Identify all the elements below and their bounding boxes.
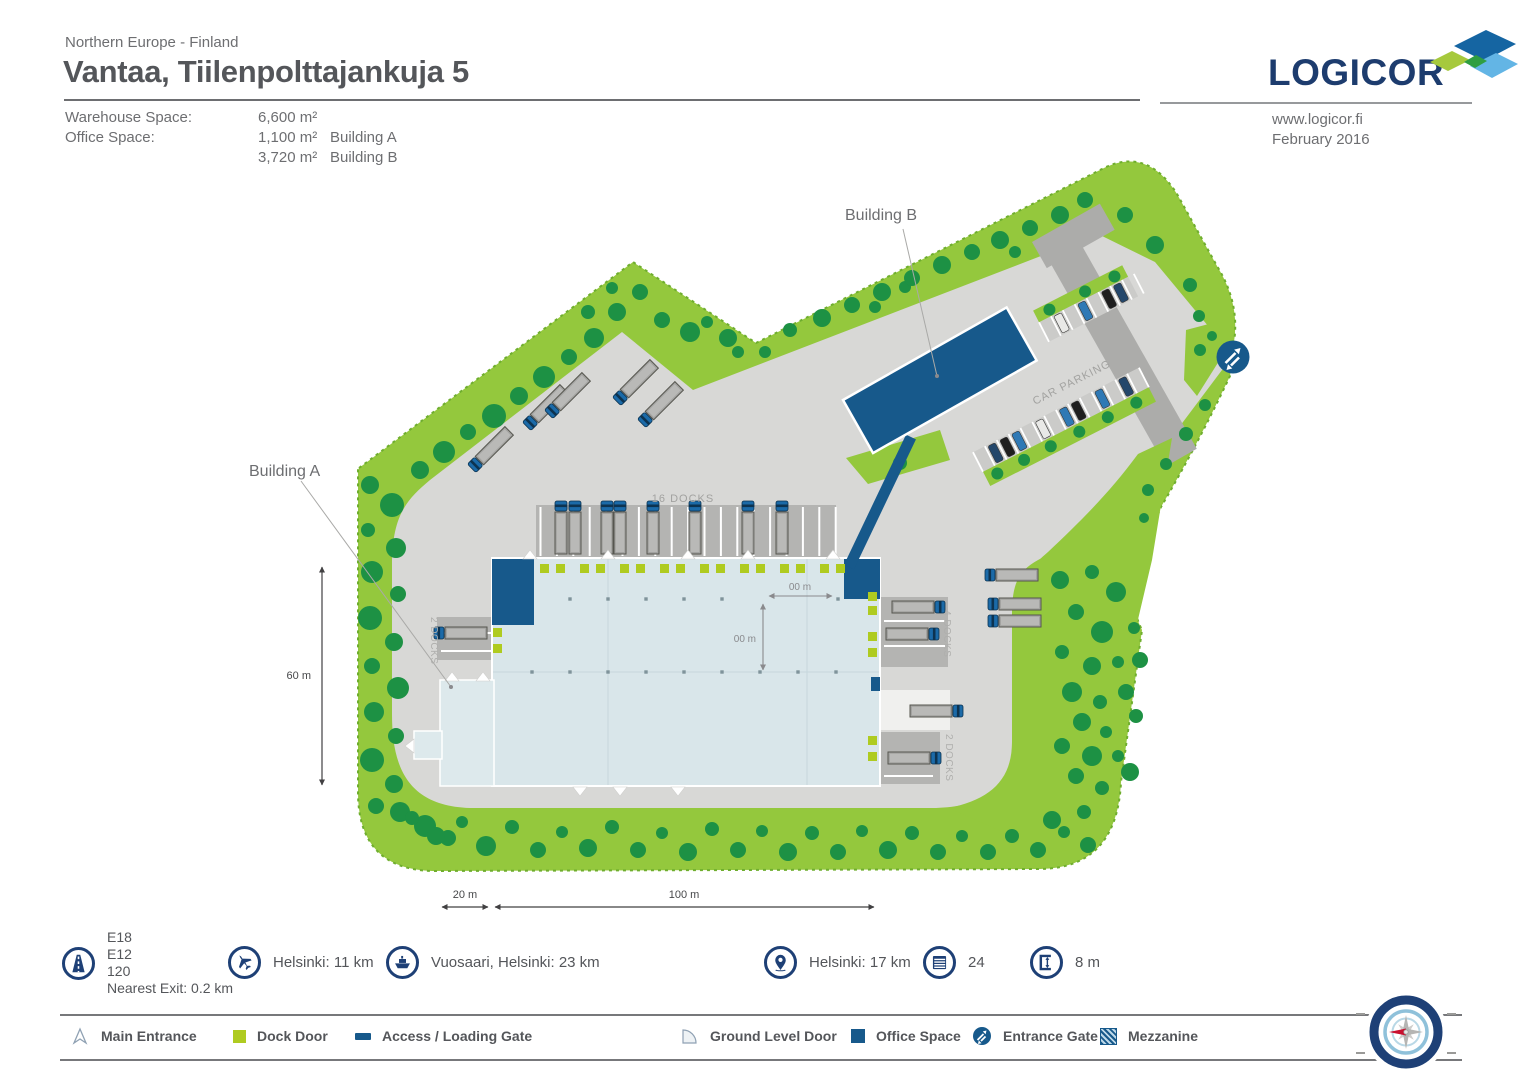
road-e12: E12 [107,946,233,963]
height-icon [1030,946,1063,979]
truck [742,501,754,554]
legend-access-gate: Access / Loading Gate [355,1014,532,1058]
access-loading-gate-icon [355,1033,371,1040]
ground-level-door-icon [678,1026,699,1047]
site-height-dim: 60 m [287,670,311,682]
docks-right-upper-label: 4 DOCKS [941,610,952,657]
building-b-label: Building B [845,207,917,224]
truck [988,615,1041,627]
grid-width-dim: 00 m [789,582,811,593]
mezzanine-icon [1100,1028,1117,1045]
road-e18: E18 [107,929,233,946]
main-entrance-icon [70,1026,90,1046]
site-plan-map: Building A Building B 16 DOCKS 2 DOCKS 4… [240,160,1260,920]
site-plan-flyer: Northern Europe - Finland Vantaa, Tiilen… [0,0,1527,1080]
location-pin-icon [764,946,797,979]
truck [892,601,945,613]
dock-door-icon [233,1030,246,1043]
dock-doors-info: 24 [923,945,985,979]
docks-right-lower-label: 2 DOCKS [943,734,954,781]
ship-icon [386,946,419,979]
entrance-gate-icon [972,1026,992,1046]
truck [988,598,1041,610]
truck [569,501,581,554]
airplane-icon [228,946,261,979]
port-distance: Vuosaari, Helsinki: 23 km [431,954,600,971]
building-a-label: Building A [249,463,320,480]
truck [888,752,941,764]
clear-height-value: 8 m [1075,954,1100,971]
access-loading-gate [871,677,880,691]
roller-door-icon [923,946,956,979]
truck [985,569,1038,581]
logicor-logo-text: LOGICOR [1268,52,1444,94]
truck [647,501,659,554]
docks-top-label: 16 DOCKS [652,493,714,505]
truck [886,628,939,640]
office-space-a-building: Building A [330,128,397,148]
legend-ground-level-door: Ground Level Door [678,1014,837,1058]
city-distance: Helsinki: 17 km [809,954,911,971]
property-specs: Warehouse Space: 6,600 m² Office Space: … [65,108,398,168]
header-divider [64,99,1140,101]
legend-entrance-gate: Entrance Gate [972,1014,1098,1058]
legend-main-entrance: Main Entrance [70,1014,197,1058]
legend-dock-door: Dock Door [233,1014,328,1058]
truck [601,501,613,554]
building-a-annex-wing [414,731,442,759]
airport-info: Helsinki: 11 km [228,945,374,979]
airport-distance: Helsinki: 11 km [273,954,374,971]
warehouse-space-value: 6,600 m² [258,108,330,128]
office-space-label: Office Space: [65,128,258,148]
truck [434,627,487,639]
city-info: Helsinki: 17 km [764,945,911,979]
clear-height-info: 8 m [1030,945,1100,979]
office-space-icon [851,1029,865,1043]
entrance-gate-icon [1217,341,1250,374]
office-space-building-a-west [492,559,534,625]
truck [689,501,701,554]
logicor-logo-icon [1424,26,1522,88]
truck [555,501,567,554]
website-link[interactable]: www.logicor.fi [1272,111,1363,128]
truck [776,501,788,554]
site-width-dim: 100 m [669,889,700,901]
logo-div ider [1160,102,1472,104]
port-info: Vuosaari, Helsinki: 23 km [386,945,600,979]
nearest-exit: Nearest Exit: 0.2 km [107,980,233,997]
date-text: February 2016 [1272,131,1370,148]
legend-office-space: Office Space [851,1014,961,1058]
office-space-a-value: 1,100 m² [258,128,330,148]
grid-depth-dim: 00 m [734,634,756,645]
compass [1356,989,1456,1075]
annex-width-dim: 20 m [453,889,477,901]
motorway-info: E18 E12 120 Nearest Exit: 0.2 km [62,928,233,998]
dock-doors-count: 24 [968,954,985,971]
truck [910,705,963,717]
building-a-annex [440,680,494,786]
page-title: Vantaa, Tiilenpolttajankuja 5 [63,54,469,90]
warehouse-space-label: Warehouse Space: [65,108,258,128]
truck [614,501,626,554]
docks-left-label: 2 DOCKS [428,617,439,664]
legend-mezzanine: Mezzanine [1100,1014,1198,1058]
road-120: 120 [107,963,233,980]
breadcrumb-region: Northern Europe - Finland [65,34,238,51]
motorway-icon [62,947,95,980]
